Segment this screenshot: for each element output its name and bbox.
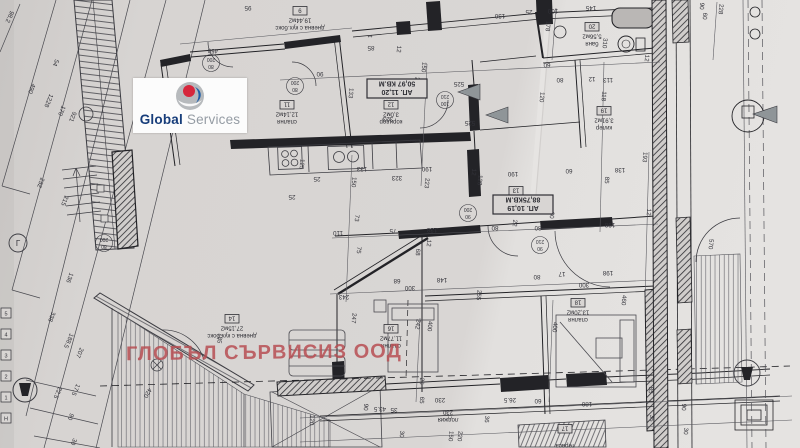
apartment-label: АП. 11,2050,97 КВ.М (367, 79, 427, 98)
door-height: 210 (441, 93, 450, 99)
dimension-label: 138 (614, 166, 625, 173)
grid-marker: 2 (4, 375, 7, 381)
bathtub (612, 8, 654, 28)
dimension-label: 150 (447, 431, 455, 442)
dimension-label: 68 (393, 277, 400, 284)
dimension-label: 90 (680, 403, 688, 411)
floor-plan-drawing: 98.2490122854170921232215136338188.52072… (0, 0, 800, 448)
dimension-label: 75 (355, 246, 363, 254)
door-width: 100 (441, 100, 450, 106)
room-tag: 16 (387, 325, 394, 331)
dimension-label: 12 (425, 239, 433, 247)
dimension-label: 75 (389, 227, 396, 234)
dimension-label: 130 (494, 12, 505, 19)
dimension-label: 110 (333, 229, 343, 236)
dimension-label: 30 (398, 430, 406, 438)
logo-word-services: Services (187, 112, 240, 127)
room-name: лоджия (438, 416, 459, 422)
grid-marker: 4 (4, 333, 7, 339)
dimension-label: 133 (347, 88, 355, 99)
dimension-label: 198 (602, 269, 613, 276)
room-name: спалня (277, 118, 297, 124)
balcony-decking-right (694, 254, 742, 384)
room-name: дневна с кух.бокс (207, 332, 256, 338)
door-height: 200 (207, 56, 216, 62)
dimension-label: 300 (578, 281, 589, 288)
door-width: 80 (292, 86, 298, 92)
floor-plan-photo: { "watermark": { "text": "ГЛОБЪЛ СЪРВИСИ… (0, 0, 800, 448)
dimension-label: 17 (558, 270, 565, 277)
dimension-label: 68 (414, 248, 422, 256)
room-area: 11,77м2 (379, 335, 402, 341)
room-area: 12,14м2 (275, 111, 298, 117)
door-height: 200 (100, 236, 109, 242)
room-name: дневна с кух.бокс (275, 24, 324, 30)
room-area: 230 (442, 409, 453, 415)
dimension-label: 230 (434, 396, 445, 403)
dimension-label: 80 (556, 76, 563, 83)
dimension-label: 460 (620, 295, 628, 306)
dimension-label: *** (409, 135, 417, 141)
dimension-label: 85 (647, 386, 655, 394)
room-tag: 14 (228, 315, 235, 321)
dimension-label: 90 (316, 70, 323, 77)
dimension-label: 525 (464, 119, 475, 126)
logo-wordmark: Global Services (140, 112, 241, 127)
room-area: 27,15м2 (220, 325, 243, 331)
dimension-label: 22 (511, 219, 519, 227)
dimension-label: 450 (207, 47, 218, 55)
dimension-label: 125 (298, 159, 306, 170)
dimension-label: 220 (456, 431, 464, 442)
dimension-label: 113 (603, 76, 613, 83)
grid-marker: 1 (4, 396, 7, 402)
dimension-label: 80 (533, 273, 540, 280)
dimension-label: 198 (604, 221, 615, 228)
room-area: 3,0м2 (382, 111, 398, 117)
dimension-label: 43.5 (373, 405, 386, 412)
dimension-label: 12 (395, 45, 403, 53)
room-tag: 18 (574, 299, 581, 305)
global-services-logo: Global Services (133, 78, 247, 133)
dimension-label: 35 (390, 406, 397, 413)
room-name: спалня (381, 342, 401, 348)
dimension-label: ** (367, 31, 372, 37)
dimension-label: 95 (244, 4, 251, 11)
room-tag: 19 (600, 107, 607, 113)
room-area: 19,44м2 (288, 17, 311, 23)
apartment-number: АП. 10,19 (507, 204, 539, 211)
room-tag: 13 (512, 187, 519, 193)
dimension-label: 60 (565, 167, 572, 174)
room-area: 13,20м2 (566, 309, 589, 315)
dimension-label: 193 (641, 152, 649, 163)
dimension-label: 90 (362, 403, 370, 411)
dimension-label: 133 (356, 165, 367, 172)
door-height: 210 (536, 238, 545, 244)
dimension-label: 120 (308, 415, 316, 426)
dimension-label: 12 (645, 208, 653, 216)
dimension-label: 60 (534, 397, 541, 404)
dimension-label: 80 (534, 224, 541, 231)
dimension-label: 35 (648, 414, 656, 422)
dimension-label: 150 (420, 62, 428, 73)
dimension-label: 178 (544, 21, 552, 32)
dimension-label: 570 (707, 239, 715, 250)
dimension-label: 150 (350, 177, 358, 188)
dimension-label: 300 (404, 284, 415, 291)
room-tag: 12 (387, 101, 394, 107)
symbol-letter: Г (16, 239, 21, 248)
dimension-label: 90 (698, 2, 706, 10)
room-tag: 11 (283, 101, 290, 107)
room-name: баня (585, 40, 598, 46)
logo-word-global: Global (140, 112, 183, 127)
dimension-label: 118 (600, 91, 608, 102)
dimension-label: 25 (313, 175, 320, 182)
dimension-label: 30 (682, 427, 690, 435)
dimension-label: 36 (483, 415, 491, 423)
dimension-label: 148 (436, 276, 447, 283)
dimension-label: 80 (491, 224, 498, 231)
dimension-label: 138 (426, 226, 437, 233)
grid-marker: 3 (4, 354, 7, 360)
apartment-area: 50,97 КВ.М (379, 80, 416, 87)
dimension-label: 400 (551, 322, 559, 333)
logo-globe-icon (168, 78, 212, 114)
dimension-label: 323 (391, 174, 402, 181)
door-height: 200 (291, 79, 300, 85)
apartment-number: АП. 11,20 (381, 88, 412, 95)
dimension-label: 128 (476, 175, 484, 186)
dimension-label: 190 (421, 165, 432, 172)
grid-marker: 5 (4, 312, 7, 318)
dimension-label: 12 (588, 75, 595, 82)
door-width: 80 (208, 63, 214, 69)
room-name: спалня (568, 316, 588, 322)
grid-marker: Н (4, 417, 8, 423)
dimension-label: 223 (423, 178, 431, 189)
dimension-label: 190 (507, 170, 518, 177)
door-width: 90 (465, 213, 471, 219)
dimension-label: 12 (470, 168, 478, 176)
room-name: коридор (379, 118, 403, 124)
room-area: 5,56м2 (582, 33, 602, 39)
dimension-label: 25 (288, 193, 295, 200)
door-height: 200 (464, 206, 473, 212)
dimension-label: 85 (603, 176, 611, 184)
dimension-label: 12 (643, 54, 651, 62)
dimension-label: 145 (585, 4, 596, 11)
dimension-label: 243 (338, 293, 349, 300)
room-area: 3,91м2 (594, 117, 614, 123)
door-width: 80 (101, 243, 107, 249)
room-tag: 17 (561, 425, 568, 431)
dimension-label: 525 (453, 80, 464, 87)
room-label: килер3,91м219 (594, 107, 614, 131)
dimension-label: 60 (543, 61, 550, 68)
apartment-label: АП. 10,1988,75КВ.М (493, 195, 553, 214)
room-tag: 20 (588, 23, 595, 29)
dimension-label: 60 (701, 12, 709, 20)
dimension-label: 26.5 (503, 396, 516, 403)
room-name: килер (595, 124, 612, 130)
dimension-label: 255 (475, 290, 483, 301)
dimension-label: 228 (717, 4, 725, 15)
dimension-label: 25 (525, 8, 532, 15)
dimension-label: 73 (353, 214, 361, 222)
dimension-label: 247 (350, 313, 358, 324)
dimension-label: 85 (367, 44, 374, 51)
dimension-label: 400 (426, 321, 434, 332)
dimension-label: 100 (547, 7, 558, 14)
dimension-label: 25 (418, 377, 426, 385)
dimension-label: 65 (418, 396, 426, 404)
apartment-area: 88,75КВ.М (506, 196, 541, 203)
dimension-label: 180 (581, 400, 592, 407)
dimension-label: 120 (538, 92, 546, 103)
room-name: тераса (555, 442, 575, 448)
door-width: 90 (537, 245, 543, 251)
